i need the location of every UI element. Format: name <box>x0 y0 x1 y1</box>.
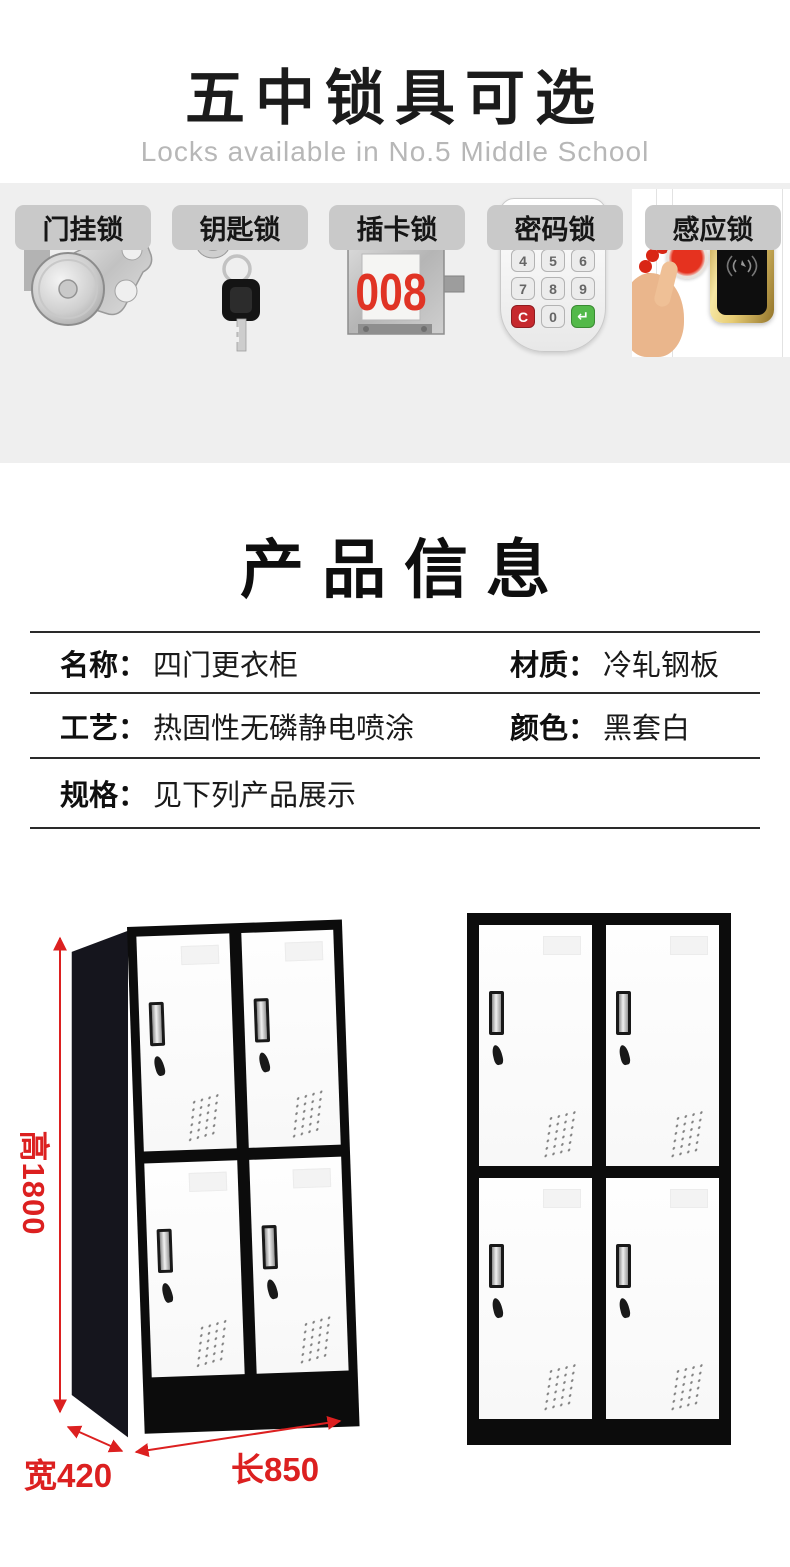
door-handle <box>616 991 631 1035</box>
table-cell: 工艺： 热固性无磷静电喷涂 <box>60 705 510 747</box>
page-subtitle: Locks available in No.5 Middle School <box>0 136 790 168</box>
product-detail-page: 五中锁具可选 Locks available in No.5 Middle Sc… <box>0 0 790 1567</box>
locker-door <box>144 1160 244 1378</box>
keyhole-icon <box>491 1297 505 1319</box>
keyhole-icon <box>160 1281 174 1303</box>
table-cell: 规格： 见下列产品展示 <box>60 772 510 814</box>
locker-door <box>606 1178 719 1419</box>
locker-front-face <box>127 919 360 1433</box>
lock-type-chip-sensor: 感应锁 <box>645 205 781 250</box>
door-handle <box>489 991 504 1035</box>
keyhole-icon <box>257 1051 271 1073</box>
keypad-key-5: 5 <box>541 249 565 272</box>
name-card-slot <box>188 1171 227 1191</box>
locker-door <box>479 925 592 1166</box>
ventilation-holes <box>668 1107 707 1160</box>
door-handle <box>489 1244 504 1288</box>
keyhole-icon <box>265 1278 279 1300</box>
name-card-slot <box>670 936 708 955</box>
keypad-key-7: 7 <box>511 277 535 300</box>
spec-value: 四门更衣柜 <box>153 642 298 684</box>
keypad-key-4: 4 <box>511 249 535 272</box>
keyhole-icon <box>618 1297 632 1319</box>
spec-label: 材质： <box>510 642 597 684</box>
spec-label: 名称： <box>60 642 147 684</box>
locker-3d-view <box>52 918 350 1450</box>
locker-door <box>136 933 236 1151</box>
locker-door <box>606 925 719 1166</box>
table-cell: 颜色： 黑套白 <box>510 705 690 747</box>
ventilation-holes <box>185 1090 222 1144</box>
dimension-height-label: 高1800 <box>25 1084 59 1282</box>
door-handle <box>253 998 270 1042</box>
ventilation-holes <box>193 1316 230 1370</box>
name-card-slot <box>670 1189 708 1208</box>
door-handle <box>157 1228 174 1272</box>
keyhole-icon <box>152 1055 166 1077</box>
product-info-table: 名称： 四门更衣柜 材质： 冷轧钢板 工艺： 热固性无磷静电喷涂 颜色： 黑套白… <box>30 631 760 829</box>
door-handle <box>149 1002 166 1046</box>
dimension-width-label: 宽420 <box>24 1449 112 1497</box>
table-cell: 名称： 四门更衣柜 <box>60 642 510 684</box>
name-card-slot <box>285 941 324 961</box>
page-title: 五中锁具可选 <box>0 50 790 137</box>
rfid-antenna-icon <box>724 248 760 284</box>
product-info-title: 产品信息 <box>0 519 790 611</box>
keypad-key-0: 0 <box>541 305 565 328</box>
locker-front-view <box>467 913 731 1445</box>
table-cell: 材质： 冷轧钢板 <box>510 642 719 684</box>
name-card-slot <box>543 936 581 955</box>
keypad-key-9: 9 <box>571 277 595 300</box>
spec-value: 热固性无磷静电喷涂 <box>153 705 414 747</box>
spec-value: 见下列产品展示 <box>153 772 356 814</box>
table-row: 规格： 见下列产品展示 <box>30 757 760 829</box>
dimension-length-label: 长850 <box>231 1443 319 1491</box>
ventilation-holes <box>541 1107 580 1160</box>
keypad-key-clear: C <box>511 305 535 328</box>
lock-type-chip-card: 插卡锁 <box>329 205 465 250</box>
table-row: 名称： 四门更衣柜 材质： 冷轧钢板 <box>30 631 760 692</box>
keyhole-icon <box>618 1044 632 1066</box>
name-card-slot <box>293 1168 332 1188</box>
door-handle <box>261 1224 278 1268</box>
ventilation-holes <box>290 1086 327 1140</box>
locker-doors-grid <box>479 925 719 1419</box>
ventilation-holes <box>541 1360 580 1413</box>
lock-type-chip-password: 密码锁 <box>487 205 623 250</box>
locker-door <box>241 930 341 1148</box>
spec-label: 工艺： <box>60 705 147 747</box>
wristband-bead <box>639 260 652 273</box>
spec-value: 黑套白 <box>603 705 690 747</box>
keypad-key-6: 6 <box>571 249 595 272</box>
ventilation-holes <box>668 1360 707 1413</box>
spec-value: 冷轧钢板 <box>603 642 719 684</box>
keyhole-icon <box>491 1044 505 1066</box>
locker-door <box>249 1156 349 1374</box>
spec-label: 规格： <box>60 772 147 814</box>
spec-label: 颜色： <box>510 705 597 747</box>
lock-type-chip-key: 钥匙锁 <box>172 205 308 250</box>
name-card-slot <box>180 945 219 965</box>
door-handle <box>616 1244 631 1288</box>
table-row: 工艺： 热固性无磷静电喷涂 颜色： 黑套白 <box>30 692 760 757</box>
ventilation-holes <box>298 1312 335 1366</box>
door-seam-line <box>782 189 783 357</box>
keypad-key-8: 8 <box>541 277 565 300</box>
name-card-slot <box>543 1189 581 1208</box>
locker-side-panel <box>70 918 128 1448</box>
lock-type-chip-hanging: 门挂锁 <box>15 205 151 250</box>
keypad-key-enter: ↵ <box>571 305 595 328</box>
locker-door <box>479 1178 592 1419</box>
locker-doors-grid <box>136 930 348 1378</box>
card-lock-number: 008 <box>355 264 426 322</box>
